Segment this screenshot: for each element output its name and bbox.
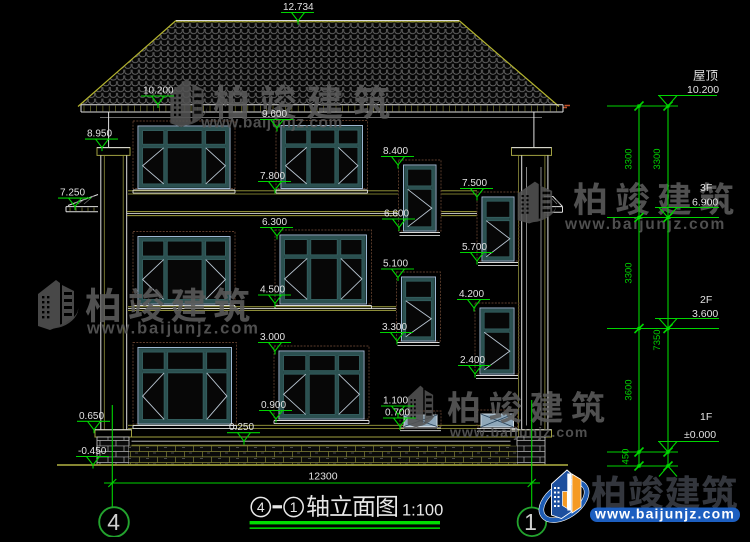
svg-text:6.600: 6.600 xyxy=(384,209,409,220)
svg-text:4: 4 xyxy=(257,499,265,515)
svg-text:0.650: 0.650 xyxy=(79,411,104,422)
svg-text:9.600: 9.600 xyxy=(262,109,287,120)
svg-text:6.300: 6.300 xyxy=(262,217,287,228)
svg-text:www.baijunjz.com: www.baijunjz.com xyxy=(86,320,260,338)
svg-text:7350: 7350 xyxy=(652,329,663,350)
svg-text:3.000: 3.000 xyxy=(260,332,285,343)
svg-text:5.700: 5.700 xyxy=(462,242,487,253)
svg-text:12300: 12300 xyxy=(308,471,337,483)
svg-text:±0.000: ±0.000 xyxy=(684,429,716,441)
svg-text:450: 450 xyxy=(621,449,632,465)
svg-text:3300: 3300 xyxy=(624,262,635,283)
svg-text:5.100: 5.100 xyxy=(383,259,408,270)
svg-text:8.950: 8.950 xyxy=(87,129,112,140)
svg-text:12.734: 12.734 xyxy=(283,2,314,13)
svg-text:3300: 3300 xyxy=(652,148,663,169)
svg-text:3.300: 3.300 xyxy=(382,322,407,333)
svg-text:2.400: 2.400 xyxy=(460,355,485,366)
svg-text:7.500: 7.500 xyxy=(462,178,487,189)
svg-text:8.400: 8.400 xyxy=(383,146,408,157)
svg-text:3300: 3300 xyxy=(624,148,635,169)
svg-text:4.200: 4.200 xyxy=(459,289,484,300)
svg-text:www.baijunjz.com: www.baijunjz.com xyxy=(594,506,735,522)
svg-text:1:100: 1:100 xyxy=(402,502,443,520)
svg-text:3F: 3F xyxy=(700,182,712,194)
svg-text:10.200: 10.200 xyxy=(687,84,719,96)
svg-text:1: 1 xyxy=(524,509,537,535)
svg-text:www.baijunjz.com: www.baijunjz.com xyxy=(564,216,726,233)
svg-text:6.900: 6.900 xyxy=(692,197,718,209)
svg-text:4: 4 xyxy=(107,509,120,535)
svg-text:0.700: 0.700 xyxy=(385,408,410,419)
svg-text:10.200: 10.200 xyxy=(143,86,174,97)
svg-text:0.900: 0.900 xyxy=(261,400,286,411)
svg-text:0.250: 0.250 xyxy=(229,422,254,433)
svg-text:1F: 1F xyxy=(700,411,712,423)
svg-text:4.500: 4.500 xyxy=(260,285,285,296)
svg-text:1: 1 xyxy=(290,499,298,515)
svg-text:-0.450: -0.450 xyxy=(78,446,107,457)
svg-text:www.baijunjz.com: www.baijunjz.com xyxy=(449,424,588,440)
svg-text:7.800: 7.800 xyxy=(260,171,285,182)
svg-text:1.100: 1.100 xyxy=(383,396,408,407)
svg-text:2F: 2F xyxy=(700,294,712,306)
svg-text:3600: 3600 xyxy=(624,379,635,400)
svg-text:7.250: 7.250 xyxy=(60,188,85,199)
